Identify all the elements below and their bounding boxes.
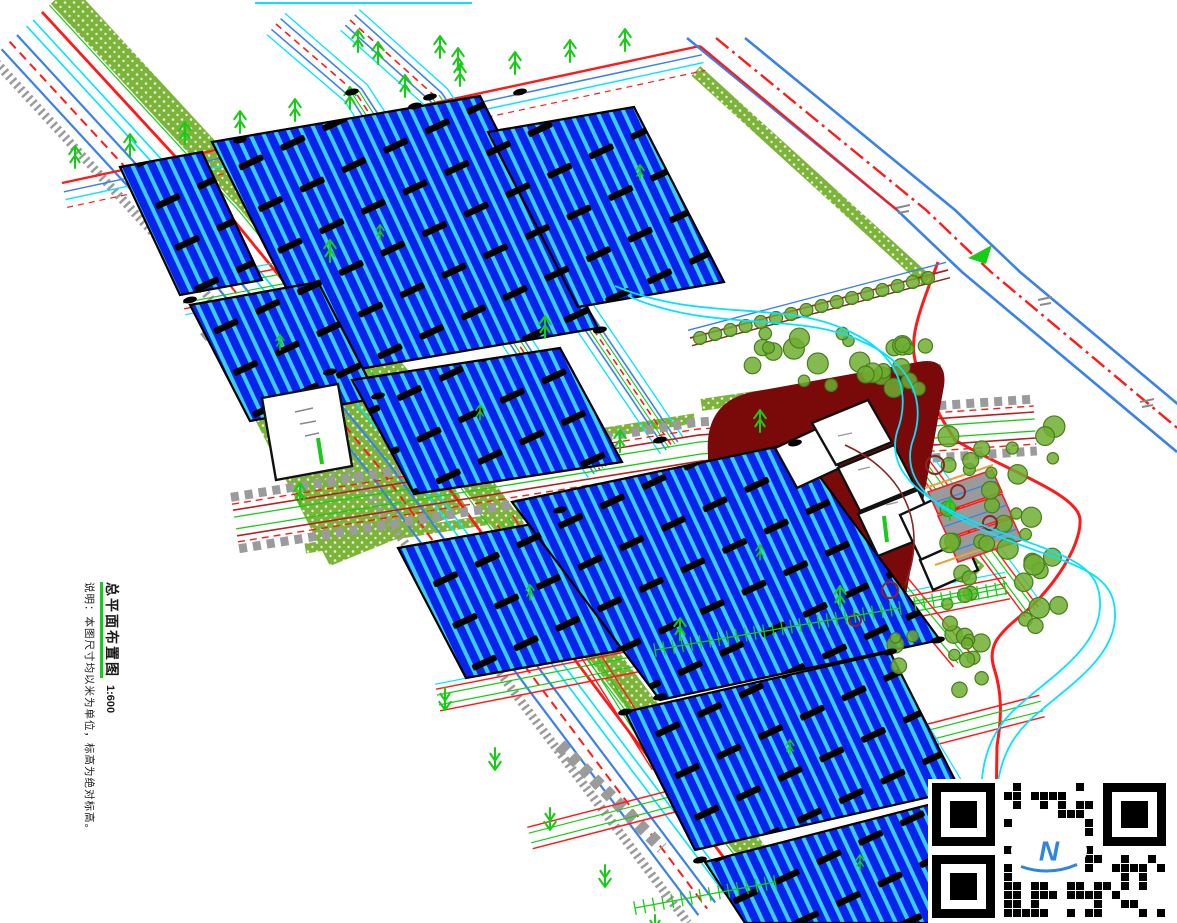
tree-canopy-icon	[1020, 528, 1032, 540]
tree-canopy-icon	[940, 533, 959, 552]
tree-icon	[619, 29, 631, 51]
tree-canopy-icon	[798, 375, 809, 386]
tree-canopy-icon	[1015, 573, 1033, 591]
drawing-scale: 1:600	[104, 685, 116, 713]
tree-canopy-icon	[907, 630, 918, 641]
tree-canopy-icon	[815, 300, 828, 313]
qr-code: N	[928, 779, 1177, 923]
tree-canopy-icon	[807, 353, 828, 374]
tree-icon	[599, 865, 611, 887]
tree-canopy-icon	[1011, 508, 1022, 519]
tree-canopy-icon	[744, 357, 761, 374]
tree-canopy-icon	[961, 638, 972, 649]
tree-canopy-icon	[825, 379, 837, 391]
tree-canopy-icon	[857, 366, 874, 383]
tree-canopy-icon	[982, 481, 1000, 499]
tree-canopy-icon	[1050, 597, 1068, 615]
tree-canopy-icon	[759, 327, 771, 339]
tree-icon	[564, 40, 576, 62]
tree-canopy-icon	[1006, 442, 1018, 454]
tree-canopy-icon	[830, 296, 843, 309]
tree-canopy-icon	[1021, 507, 1041, 527]
tree-canopy-icon	[985, 498, 1000, 513]
tree-canopy-icon	[724, 324, 737, 337]
site-plan-page: N 总平面布置图1:600 说明：本图尺寸均以米为单位，标高为绝对标高。	[0, 0, 1177, 923]
tree-canopy-icon	[938, 426, 959, 447]
tree-canopy-icon	[789, 328, 809, 348]
tree-canopy-icon	[846, 292, 859, 305]
tree-canopy-icon	[997, 538, 1018, 559]
tree-canopy-icon	[949, 649, 960, 660]
drawing-note: 说明：本图尺寸均以米为单位，标高为绝对标高。	[82, 582, 97, 842]
tree-canopy-icon	[876, 284, 889, 297]
tree-canopy-icon	[963, 453, 979, 469]
tree-icon	[434, 36, 446, 58]
tree-canopy-icon	[895, 337, 910, 352]
site-boundary-northeast	[700, 46, 897, 210]
tree-canopy-icon	[972, 634, 990, 652]
tree-canopy-icon	[1047, 453, 1058, 464]
tree-canopy-icon	[906, 276, 919, 289]
tree-icon	[649, 915, 661, 923]
tree-canopy-icon	[979, 536, 995, 552]
tree-canopy-icon	[861, 288, 874, 301]
building-outline	[262, 384, 352, 480]
site-plan-drawing: N	[0, 0, 1177, 923]
tree-canopy-icon	[763, 342, 775, 354]
tree-canopy-icon	[975, 672, 988, 685]
tree-canopy-icon	[891, 280, 904, 293]
tree-canopy-icon	[890, 633, 900, 643]
tree-canopy-icon	[1036, 427, 1055, 446]
drawing-title: 总平面布置图	[100, 582, 120, 678]
tree-canopy-icon	[962, 571, 976, 585]
tree-canopy-icon	[1029, 598, 1050, 619]
entrance-mark-icon	[422, 92, 437, 101]
tree-canopy-icon	[1028, 618, 1043, 633]
tree-canopy-icon	[922, 272, 935, 285]
qr-logo-letter: N	[1039, 836, 1060, 867]
tree-canopy-icon	[986, 467, 997, 478]
drawing-title-row: 总平面布置图1:600	[102, 582, 122, 842]
tree-icon	[399, 75, 411, 97]
junction-arrow-icon	[968, 245, 992, 264]
tree-canopy-icon	[952, 682, 967, 697]
tree-icon	[289, 99, 301, 121]
tree-canopy-icon	[1024, 555, 1045, 576]
tree-canopy-icon	[709, 328, 722, 341]
tree-canopy-icon	[1008, 465, 1027, 484]
tree-icon	[234, 111, 246, 133]
tree-canopy-icon	[800, 304, 813, 317]
tree-icon	[439, 688, 451, 710]
tree-icon	[454, 64, 466, 86]
tree-icon	[509, 52, 521, 74]
tree-canopy-icon	[891, 658, 906, 673]
tree-icon	[489, 748, 501, 770]
drawing-caption: 总平面布置图1:600 说明：本图尺寸均以米为单位，标高为绝对标高。	[82, 582, 122, 842]
tree-canopy-icon	[918, 339, 932, 353]
tree-canopy-icon	[694, 332, 707, 345]
tree-canopy-icon	[943, 616, 958, 631]
tree-canopy-icon	[960, 652, 975, 667]
